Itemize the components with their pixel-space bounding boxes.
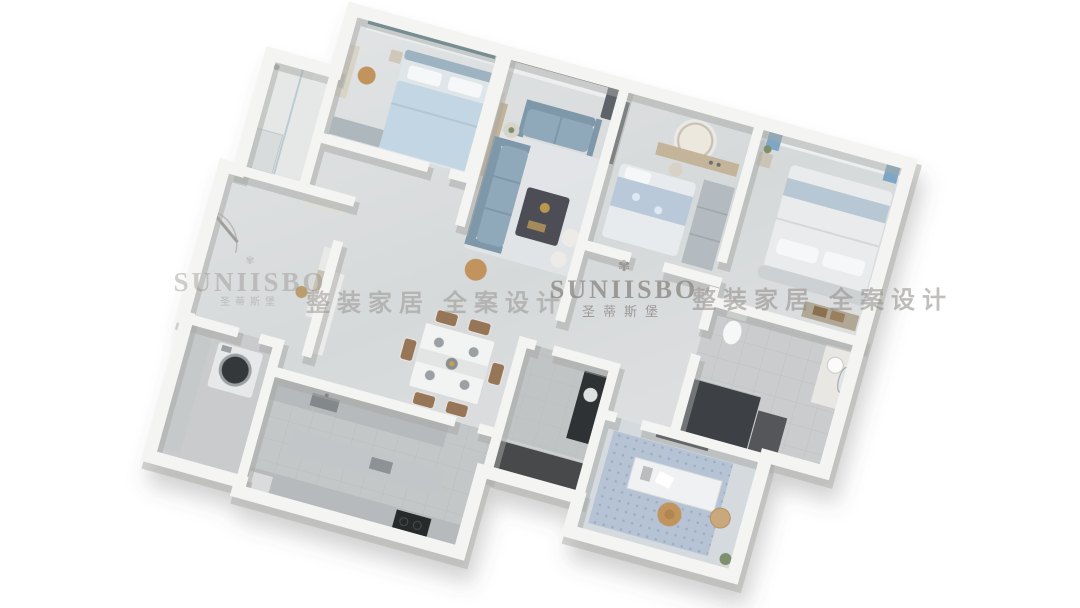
floorplan-render: ✾ SUNIISBO 圣蒂斯堡 ✾ SUNIISBO 圣蒂斯堡 整装家居 全案设… (0, 0, 1080, 608)
apartment-floorplan (0, 0, 1080, 608)
